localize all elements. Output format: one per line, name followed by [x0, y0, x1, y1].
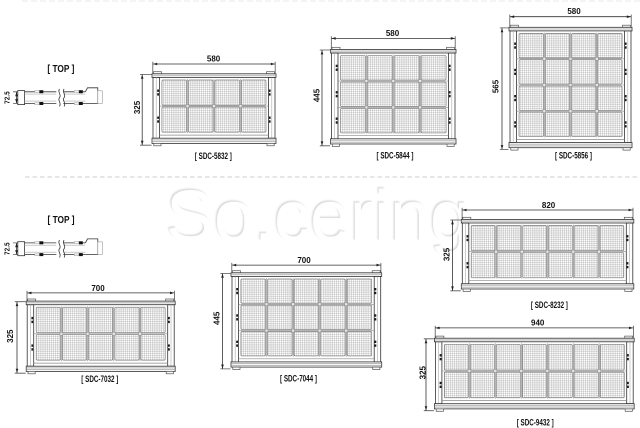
- svg-text:820: 820: [542, 201, 556, 210]
- svg-text:580: 580: [207, 55, 221, 64]
- svg-text:[ SDC-7044 ]: [ SDC-7044 ]: [280, 374, 317, 384]
- svg-text:[ SDC-5856 ]: [ SDC-5856 ]: [555, 150, 592, 160]
- svg-text:940: 940: [531, 318, 545, 327]
- svg-text:565: 565: [492, 79, 501, 93]
- svg-text:[ SDC-8232 ]: [ SDC-8232 ]: [531, 300, 568, 310]
- svg-text:325: 325: [133, 100, 142, 114]
- svg-text:325: 325: [419, 365, 428, 379]
- svg-text:580: 580: [386, 29, 400, 38]
- svg-text:[ TOP ]: [ TOP ]: [48, 215, 75, 226]
- svg-text:580: 580: [567, 7, 581, 16]
- svg-text:445: 445: [312, 88, 321, 102]
- svg-text:[ SDC-7032 ]: [ SDC-7032 ]: [81, 374, 118, 384]
- svg-text:445: 445: [213, 311, 222, 325]
- svg-text:[ SDC-5844 ]: [ SDC-5844 ]: [377, 151, 414, 161]
- svg-text:700: 700: [297, 256, 311, 265]
- svg-text:325: 325: [6, 329, 15, 343]
- svg-text:325: 325: [443, 247, 452, 261]
- svg-text:[ SDC-9432 ]: [ SDC-9432 ]: [517, 417, 554, 427]
- svg-text:[ TOP ]: [ TOP ]: [47, 64, 74, 75]
- svg-text:700: 700: [91, 284, 105, 293]
- svg-text:72.5: 72.5: [5, 242, 12, 255]
- svg-text:[ SDC-5832 ]: [ SDC-5832 ]: [195, 151, 232, 161]
- svg-text:72.5: 72.5: [5, 91, 12, 104]
- svg-text:So.cering: So.cering: [166, 177, 470, 257]
